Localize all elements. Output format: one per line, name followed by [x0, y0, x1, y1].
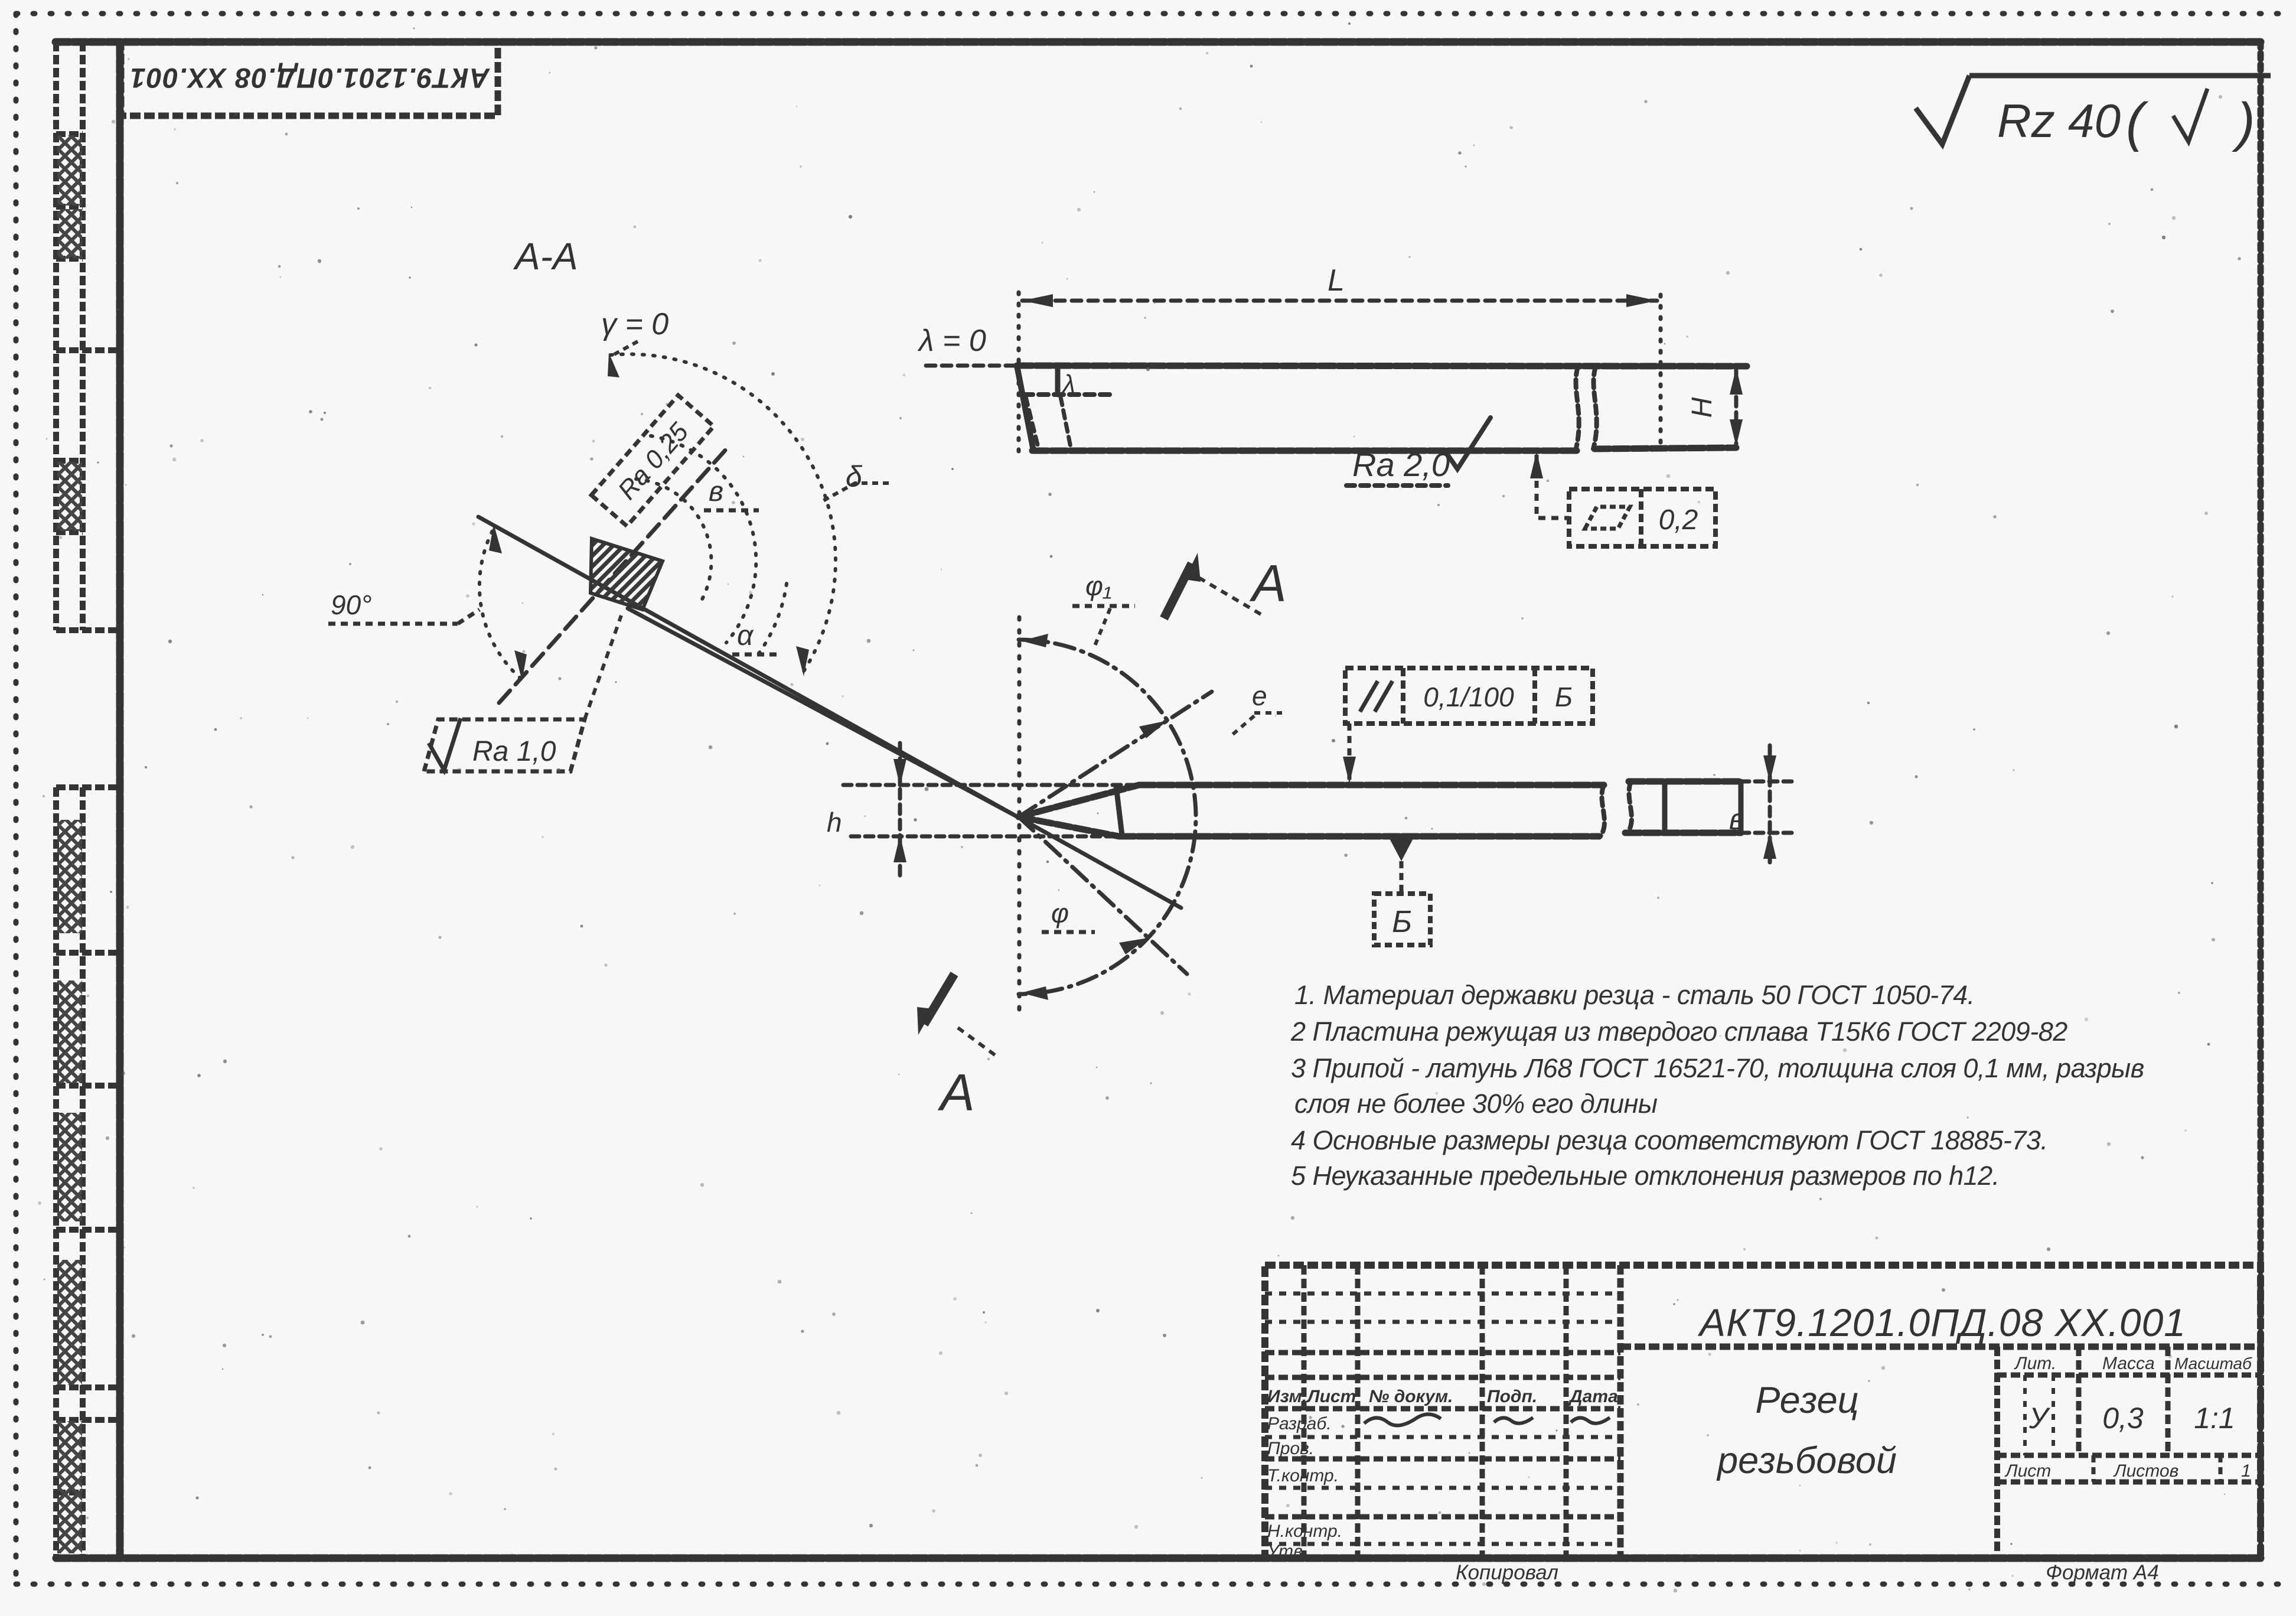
svg-text:Масштаб: Масштаб [2174, 1354, 2252, 1373]
svg-text:Листов: Листов [2113, 1461, 2178, 1481]
svg-text:Разраб.: Разраб. [1267, 1414, 1332, 1433]
svg-text:У: У [2028, 1402, 2051, 1435]
svg-text:№ докум.: № докум. [1369, 1387, 1453, 1406]
svg-text:Ra 2,0: Ra 2,0 [1352, 446, 1450, 483]
svg-text:Лист: Лист [1306, 1387, 1356, 1406]
svg-text:Утв.: Утв. [1267, 1542, 1307, 1561]
svg-text:δ: δ [846, 460, 863, 493]
svg-text:Подп.: Подп. [1487, 1387, 1537, 1406]
svg-text:0,2: 0,2 [1659, 504, 1698, 536]
svg-text:АКТ9.1201.0ПД.08 XX.001: АКТ9.1201.0ПД.08 XX.001 [1697, 1301, 2186, 1344]
svg-text:Rz 40: Rz 40 [1997, 95, 2121, 147]
svg-text:е: е [1252, 680, 1267, 711]
svg-text:Масса: Масса [2102, 1354, 2155, 1373]
svg-text:φ₁: φ₁ [1085, 571, 1112, 601]
svg-text:Т.контр.: Т.контр. [1267, 1466, 1339, 1485]
svg-text:2 Пластина режущая из твердого: 2 Пластина режущая из твердого сплава Т1… [1290, 1016, 2067, 1047]
svg-text:φ: φ [1051, 898, 1069, 928]
svg-text:резьбовой: резьбовой [1716, 1440, 1897, 1481]
svg-text:А: А [937, 1063, 975, 1122]
svg-text:в: в [1729, 803, 1744, 836]
svg-text:Копировал: Копировал [1456, 1561, 1558, 1584]
svg-text:А-А: А-А [513, 235, 578, 278]
svg-text:Формат А4: Формат А4 [2046, 1561, 2159, 1584]
svg-text:3 Припой - латунь Л68 ГОСТ 165: 3 Припой - латунь Л68 ГОСТ 16521-70, тол… [1291, 1053, 2144, 1083]
svg-text:1: 1 [2241, 1461, 2251, 1481]
svg-text:слоя не более 30% его длины: слоя не более 30% его длины [1294, 1089, 1658, 1119]
svg-text:Б: Б [1555, 682, 1573, 712]
svg-text:АКТ9.1201.0ПД.08 XX.001: АКТ9.1201.0ПД.08 XX.001 [129, 63, 490, 94]
svg-text:0,1/100: 0,1/100 [1423, 682, 1514, 712]
svg-text:α: α [737, 620, 754, 651]
svg-text:H: H [1687, 397, 1718, 418]
svg-text:90°: 90° [331, 589, 372, 620]
svg-text:Б: Б [1392, 905, 1412, 939]
svg-text:Лист: Лист [2004, 1461, 2051, 1481]
svg-text:4 Основные размеры резца соотв: 4 Основные размеры резца соответствуют Г… [1291, 1125, 2047, 1155]
svg-text:А: А [1249, 554, 1287, 612]
svg-text:в: в [709, 476, 723, 507]
svg-text:Резец: Резец [1755, 1380, 1858, 1421]
svg-text:γ = 0: γ = 0 [601, 307, 668, 341]
svg-text:Изм.: Изм. [1267, 1387, 1307, 1406]
svg-text:0,3: 0,3 [2102, 1402, 2144, 1435]
svg-text:L: L [1328, 263, 1345, 298]
svg-text:h: h [827, 807, 842, 838]
svg-text:1. Материал державки резца - с: 1. Материал державки резца - сталь 50 ГО… [1294, 980, 1975, 1010]
svg-text:Лит.: Лит. [2014, 1354, 2056, 1373]
svg-text:Пров.: Пров. [1267, 1439, 1314, 1458]
svg-text:λ: λ [1062, 370, 1075, 398]
svg-text:λ = 0: λ = 0 [917, 324, 986, 358]
svg-text:1:1: 1:1 [2194, 1402, 2235, 1435]
svg-text:Н.контр.: Н.контр. [1267, 1521, 1342, 1541]
svg-text:Ra 1,0: Ra 1,0 [472, 736, 556, 767]
svg-text:5 Неуказанные предельные откло: 5 Неуказанные предельные отклонения разм… [1291, 1161, 2000, 1191]
svg-text:Дата: Дата [1568, 1387, 1618, 1406]
